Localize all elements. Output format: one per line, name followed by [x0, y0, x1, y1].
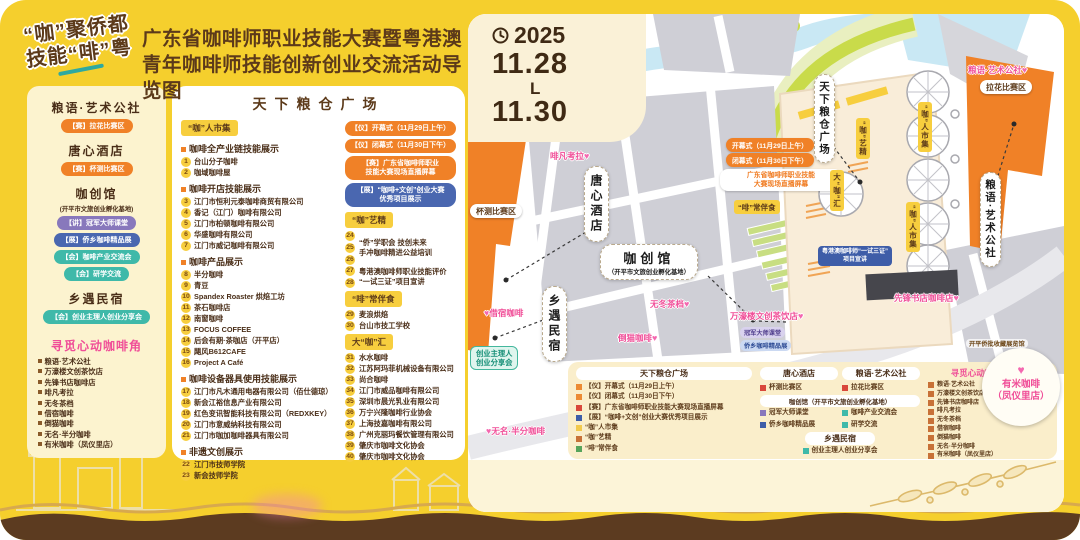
legend-color-square — [760, 422, 766, 428]
ceremony-pill: 【仪】闭幕式（11月30日下午） — [345, 139, 456, 154]
coffee-shop-item: 先锋书店咖啡店 — [38, 378, 156, 388]
item-number: 36 — [345, 408, 355, 418]
program-entry: 242526 “侨”学职会 技创未来手冲咖啡精进公益培训 — [345, 231, 456, 265]
program-entry: 33 尚合咖啡 — [345, 375, 456, 385]
item-text: 江门市意威纳科技有限公司 — [194, 420, 339, 430]
legend-coffee-shop: 无名·半分咖啡 — [928, 443, 1033, 452]
zone-tag: “咖”艺精 — [345, 212, 393, 228]
program-entry: 30 台山市技工学校 — [345, 321, 456, 331]
program-section: 咖啡设备器具使用技能展示 17 江门市凡木通用电器有限公司（佰仕德琼） — [181, 372, 339, 441]
item-number: 34 — [345, 386, 355, 396]
item-number: 30 — [345, 321, 355, 331]
market-zone-tag-1: “咖”人市集 — [918, 102, 932, 152]
exhibitor-item: 8 半分咖啡 — [181, 270, 339, 280]
item-text: 台山分子咖啡 — [194, 157, 339, 167]
item-text: 茶石咖啡店 — [194, 303, 339, 313]
venue-subtitle: (开平市文旅创业孵化基地) — [33, 204, 160, 213]
item-number: 7 — [181, 241, 191, 251]
legend-color-square — [928, 426, 934, 432]
coffee-shop-item: 倒猫咖啡 — [38, 419, 156, 429]
legend-row-text: 【仪】闭幕式（11月30日下午） — [585, 392, 678, 402]
exhibitor-item: 12 南窗咖啡 — [181, 314, 339, 324]
exhibitor-item: 1 台山分子咖啡 — [181, 157, 339, 167]
program-entry: 40 肇庆市咖啡文化协会 — [345, 452, 456, 462]
sharing-note-line1: 创业主理人 — [476, 349, 512, 358]
pill-line: 技能大赛现场直播屏幕 — [350, 168, 451, 178]
legend-plaza-header: 天下粮仓广场 — [576, 367, 752, 380]
item-text: 江门市技师学院 — [194, 460, 339, 470]
opening-ceremony-pill: 开幕式（11月29日上午） — [726, 138, 814, 152]
ceremony-pill: 【展】“咖啡+文创”创业大赛优秀项目展示 — [345, 183, 456, 207]
market-tag: “咖”人市集 — [181, 120, 238, 136]
legend-color-square — [928, 444, 934, 450]
item-number: 37 — [345, 419, 355, 429]
venue-section: 咖创馆 (开平市文旅创业孵化基地) 【讲】冠军大师课堂 【展】侨乡咖啡精品展 【… — [33, 185, 160, 281]
champion-class-badge: 冠军大师课堂 — [740, 327, 785, 338]
entry-line: 上海技嘉咖啡有限公司 — [359, 419, 432, 429]
item-number: 1 — [181, 157, 191, 167]
item-text: Project A Café — [194, 358, 339, 368]
item-number: 6 — [181, 230, 191, 240]
program-section-heading: 咖啡全产业链技能展示 — [181, 142, 339, 155]
item-text: 香记（江门）咖啡有限公司 — [194, 208, 339, 218]
certification-line1: 粤港澳咖啡师“一试三证” — [822, 248, 888, 256]
legend-plaza-column: 天下粮仓广场 【仪】开幕式（11月29日上午） 【仪】闭幕式（11月30日下午） — [576, 367, 752, 454]
date-separator: L — [530, 80, 646, 97]
exhibitor-item: 19 红色变讯智能科技有限公司（REDXKEY） — [181, 409, 339, 419]
zone-tag: 大“咖”汇 — [345, 334, 393, 350]
legend-row: 【展】“咖啡+文创”创业大赛优秀项目展示 — [576, 413, 752, 423]
title-line1: 广东省咖啡师职业技能大赛暨粤港澳 — [142, 26, 472, 52]
shop-label-wanhao: 万濠楼文创茶饮店♥ — [730, 310, 803, 322]
program-section: 咖啡产品展示 8 半分咖啡 9 — [181, 255, 339, 368]
venue-section: 粮语·艺术公社 【赛】拉花比赛区 — [33, 99, 160, 133]
shop-label-feifan: 啡凡考拉♥ — [550, 150, 589, 162]
exhibitor-item: 15 飓风B612CAFE — [181, 347, 339, 357]
pill-line: 【展】“咖啡+文创”创业大赛 — [350, 186, 451, 196]
legend-color-square — [576, 384, 582, 390]
activity-badge: 【会】研学交流 — [64, 267, 129, 281]
kachuangguan-subtitle: （开平市文旅创业孵化基地） — [608, 267, 690, 276]
item-text: 飓风B612CAFE — [194, 347, 339, 357]
legend-row-text: 【赛】广东省咖啡师职业技能大赛现场直播屏幕 — [585, 403, 723, 413]
legend-row: 【仪】闭幕式（11月30日下午） — [576, 392, 752, 402]
venue-section: 唐心酒店 【赛】杯测比赛区 — [33, 142, 160, 176]
entry-line: 江苏阿玛菲机械设备有限公司 — [359, 364, 454, 374]
program-group: “啡”常伴食 29 — [345, 289, 456, 331]
legend-coffee-shop: 倒猫咖啡 — [928, 434, 1033, 443]
item-text: 江门市恒利元泰咖啡商贸有限公司 — [194, 197, 339, 207]
item-text: 后会有期·茶咖店（开平店） — [194, 336, 339, 346]
item-number: 33 — [345, 375, 355, 385]
ceremony-pill: 【仪】开幕式（11月29日上午） — [345, 121, 456, 136]
legend-row: 【赛】广东省咖啡师职业技能大赛现场直播屏幕 — [576, 403, 752, 413]
item-number: 20 — [181, 420, 191, 430]
entry-line: 广州克丽玛餐饮管理有限公司 — [359, 430, 454, 440]
exhibitor-item: 20 江门市意威纳科技有限公司 — [181, 420, 339, 430]
item-number: 3 — [181, 197, 191, 207]
item-number: 24 — [345, 231, 355, 241]
legend-color-square — [576, 425, 582, 431]
program-entry: 34 江门市威品咖啡有限公司 — [345, 386, 456, 396]
legend-xiangyu-header: 乡遇民宿 — [805, 432, 875, 445]
item-number: 35 — [345, 397, 355, 407]
legend-color-square — [576, 415, 582, 421]
qiaoxiang-expo-badge: 侨乡咖啡精品展 — [740, 340, 791, 351]
certification-line2: 项目宣讲 — [822, 256, 888, 264]
exhibitor-item: 23 新会技师学院 — [181, 471, 339, 481]
item-number: 16 — [181, 358, 191, 368]
map-label-kachuangguan: 咖创馆 （开平市文旅创业孵化基地） — [600, 244, 698, 280]
item-number: 28 — [345, 278, 355, 288]
live-note-line2: 大赛现场直播屏幕 — [725, 180, 837, 189]
activity-badge: 【讲】冠军大师课堂 — [57, 216, 136, 230]
exhibitor-item: 9 青豆 — [181, 281, 339, 291]
youmi-coffee-callout: ♥ 有米咖啡 （凤仪里店） — [982, 348, 1060, 426]
item-text: 青豆 — [194, 281, 339, 291]
item-number: 4 — [181, 208, 191, 218]
program-entry: 31 水水咖啡 — [345, 353, 456, 363]
shop-label-wuming: ♥无名·半分咖啡 — [486, 425, 545, 437]
legend-row-text: “咖”艺精 — [585, 433, 611, 443]
item-number: 12 — [181, 314, 191, 324]
item-text: 华盛咖啡有限公司 — [194, 230, 339, 240]
exhibitor-item: 2 咖域咖啡屋 — [181, 168, 339, 178]
legend-color-square — [576, 405, 582, 411]
heart-icon: ♥ — [798, 311, 803, 321]
item-number: 5 — [181, 219, 191, 229]
program-entry: 39 肇庆市咖啡文化协会 — [345, 441, 456, 451]
live-note-line1: 广东省咖啡师职业技能 — [725, 171, 837, 180]
event-dates: 2025 11.28 L 11.30 — [468, 14, 646, 142]
market-zone-tag-2: “咖”人市集 — [906, 202, 920, 252]
cupping-zone-pill: 杯测比赛区 — [470, 204, 522, 218]
pill-line: 【仪】闭幕式（11月30日下午） — [350, 141, 451, 151]
item-number: 40 — [345, 452, 355, 462]
item-text: 南窗咖啡 — [194, 314, 339, 324]
exhibitor-item: 17 江门市凡木通用电器有限公司（佰仕德琼） — [181, 387, 339, 397]
program-right-column: 【仪】开幕式（11月29日上午） 【仪】闭幕式（11月30日下午） 【赛】广东省… — [345, 118, 456, 482]
item-number: 22 — [181, 460, 191, 470]
poster-canvas: “咖”聚侨都 技能“啡”粤 广东省咖啡师职业技能大赛暨粤港澳 青年咖啡师技能创新… — [0, 0, 1080, 540]
venue-title: 粮语·艺术公社 — [33, 99, 160, 116]
program-section-heading: 咖啡产品展示 — [181, 255, 339, 268]
coffee-branch-art — [860, 452, 1060, 512]
dakahui-zone-tag: 大“咖”汇 — [830, 170, 844, 211]
coffee-shop-item: 借宿咖啡 — [38, 409, 156, 419]
map-panel: 2025 11.28 L 11.30 唐心酒店 乡遇民宿 天下粮仓广场 粮语·艺… — [468, 14, 1064, 512]
legend-color-square — [842, 410, 848, 416]
entry-line: 肇庆市咖啡文化协会 — [359, 452, 425, 462]
venue-title: 咖创馆 — [33, 185, 160, 202]
legend-color-square — [928, 435, 934, 441]
clock-icon — [492, 27, 509, 44]
callout-caption: 开平侨批收藏展览馆 — [966, 339, 1028, 348]
exhibitor-item: 22 江门市技师学院 — [181, 460, 339, 470]
entry-line: 麦浪烘焙 — [359, 310, 388, 320]
heart-icon: ♥ — [684, 299, 689, 309]
item-number: 19 — [181, 409, 191, 419]
item-number: 39 — [345, 441, 355, 451]
legend-row: “啡”常伴食 — [576, 444, 752, 454]
item-text: 江门市威记咖啡有限公司 — [194, 241, 339, 251]
legend-color-square — [576, 436, 582, 442]
program-group: 大“咖”汇 31 — [345, 332, 456, 462]
entry-line: “一试三证”项目宣讲 — [359, 277, 447, 287]
program-entry: 37 上海技嘉咖啡有限公司 — [345, 419, 456, 429]
date-from: 11.28 — [492, 49, 646, 80]
venue-sidebar: 粮语·艺术公社 【赛】拉花比赛区 唐心酒店 【赛】杯测比赛区 — [27, 86, 166, 458]
coffee-shop-item: 啡凡考拉 — [38, 388, 156, 398]
panel-bottom-strip — [468, 460, 1064, 512]
activity-badge: 【赛】拉花比赛区 — [61, 119, 133, 133]
exhibitor-item: 14 后会有期·茶咖店（开平店） — [181, 336, 339, 346]
activity-badge: 【会】咖啡产业交流会 — [54, 250, 140, 264]
map-label-xiangyu-homestay: 乡遇民宿 — [542, 286, 567, 362]
exhibitor-item: 18 新会江裕信息产业有限公司 — [181, 398, 339, 408]
coffee-shop-item: 粮语·艺术公社 — [38, 357, 156, 367]
legend-color-square — [928, 382, 934, 388]
legend-color-square — [803, 448, 809, 454]
shop-label-daomao: 倒猫咖啡♥ — [618, 332, 657, 344]
entry-line: 江门市威品咖啡有限公司 — [359, 386, 439, 396]
exhibitor-item: 13 FOCUS COFFEE — [181, 325, 339, 335]
entry-line: 尚合咖啡 — [359, 375, 388, 385]
program-left-column: “咖”人市集 咖啡全产业链技能展示 1 台山分子咖啡 — [181, 118, 339, 482]
legend-venues-column: 唐心酒店 粮语·艺术公社 杯测比赛区 拉花比赛区 咖创馆（开平市文旅创业孵化基地… — [760, 367, 920, 454]
program-section: 咖啡全产业链技能展示 1 台山分子咖啡 — [181, 142, 339, 178]
entry-line: “侨”学职会 技创未来 — [359, 238, 432, 248]
legend-coffee-shop: 有米咖啡（凤仪里店） — [928, 451, 1033, 460]
legend-row: “咖”人市集 — [576, 423, 752, 433]
pill-line: 【赛】广东省咖啡师职业 — [350, 159, 451, 169]
exhibitor-item: 21 江门市咖加咖啡器具有限公司 — [181, 431, 339, 441]
item-number: 2 — [181, 168, 191, 178]
entry-line: 手冲咖啡精进公益培训 — [359, 248, 432, 258]
callout-branch-name: （凤仪里店） — [982, 391, 1060, 403]
closing-ceremony-pill: 闭幕式（11月30日下午） — [726, 153, 814, 167]
item-number: 32 — [345, 364, 355, 374]
kachuangguan-name: 咖创馆 — [608, 248, 690, 267]
certification-note: 粤港澳咖啡师“一试三证” 项目宣讲 — [818, 246, 892, 266]
item-number: 38 — [345, 430, 355, 440]
item-text: 新会技师学院 — [194, 471, 339, 481]
entry-line: 肇庆市咖啡文化协会 — [359, 441, 425, 451]
entry-line: 万宁兴隆咖啡行业协会 — [359, 408, 432, 418]
legend-color-square — [928, 391, 934, 397]
legend-color-square — [842, 385, 848, 391]
map-label-liangyu-commune: 粮语·艺术公社 — [980, 172, 1001, 267]
exhibitor-item: 11 茶石咖啡店 — [181, 303, 339, 313]
ceremony-pill: 【赛】广东省咖啡师职业技能大赛现场直播屏幕 — [345, 156, 456, 180]
program-group: “咖”艺精 242526 — [345, 210, 456, 288]
coffee-shop-item: 无冬茶档 — [38, 399, 156, 409]
coffee-shop-item: 有米咖啡（凤仪里店） — [38, 440, 156, 450]
pink-stamp-blur — [252, 494, 322, 518]
title-line2: 青年咖啡师技能创新创业交流活动导览图 — [142, 52, 472, 104]
program-entry: 2728 粤港澳咖啡师职业技能评价“一试三证”项目宣讲 — [345, 266, 456, 288]
entry-line: 深圳市晨光乳业有限公司 — [359, 397, 439, 407]
venue-title: 唐心酒店 — [33, 142, 160, 159]
legend-color-square — [842, 422, 848, 428]
live-broadcast-note: 广东省咖啡师职业技能 大赛现场直播屏幕 — [720, 169, 842, 191]
sharing-session-note: 创业主理人 创业分享会 — [470, 346, 518, 370]
entry-line: 台山市技工学校 — [359, 321, 410, 331]
page-title: 广东省咖啡师职业技能大赛暨粤港澳 青年咖啡师技能创新创业交流活动导览图 — [142, 26, 472, 104]
heart-icon: ♥ — [954, 293, 959, 303]
legend-color-square — [760, 385, 766, 391]
legend-row-text: “啡”常伴食 — [585, 444, 618, 454]
legend-coffee-shop: 借宿咖啡 — [928, 425, 1033, 434]
event-logo: “咖”聚侨都 技能“啡”粤 — [11, 10, 145, 79]
exhibitor-item: 6 华盛咖啡有限公司 — [181, 230, 339, 240]
kayijing-zone-tag: “咖”艺精 — [856, 118, 870, 159]
date-year: 2025 — [514, 22, 565, 49]
legend-color-square — [928, 453, 934, 459]
latte-art-zone-pill: 拉花比赛区 — [980, 80, 1032, 94]
legend-color-square — [576, 394, 582, 400]
item-number: 23 — [181, 471, 191, 481]
program-entry: 35 深圳市晨光乳业有限公司 — [345, 397, 456, 407]
item-number: 13 — [181, 325, 191, 335]
legend-row-text: 【仪】开幕式（11月29日上午） — [585, 382, 678, 392]
sharing-note-line2: 创业分享会 — [476, 358, 512, 367]
legend-color-square — [760, 410, 766, 416]
item-number: 15 — [181, 347, 191, 357]
legend-kachuangguan-header: 咖创馆（开平市文旅创业孵化基地） — [760, 395, 920, 407]
exhibitor-item: 4 香记（江门）咖啡有限公司 — [181, 208, 339, 218]
activity-badge: 【赛】杯测比赛区 — [61, 162, 133, 176]
coffee-shop-item: 无名·半分咖啡 — [38, 430, 156, 440]
item-number: 11 — [181, 303, 191, 313]
heart-icon: ♥ — [652, 333, 657, 343]
heart-icon: ♥ — [584, 151, 589, 161]
item-text: 新会江裕信息产业有限公司 — [194, 398, 339, 408]
coffee-shop-item: 万濠楼文创茶饮店 — [38, 367, 156, 377]
map-label-tangxin-hotel: 唐心酒店 — [584, 166, 609, 242]
item-text: 江门市凡木通用电器有限公司（佰仕德琼） — [194, 387, 339, 397]
item-number: 8 — [181, 270, 191, 280]
item-number: 26 — [345, 255, 355, 265]
legend-row-text: “咖”人市集 — [585, 423, 618, 433]
item-number: 10 — [181, 292, 191, 302]
callout-shop-name: 有米咖啡 — [982, 379, 1060, 391]
shop-label-liangyu: 粮语·艺术公社♥ — [968, 64, 1027, 76]
legend-color-square — [928, 400, 934, 406]
activity-badge: 【展】侨乡咖啡精品展 — [54, 233, 140, 247]
legend-color-square — [928, 418, 934, 424]
shop-label-wudong: 无冬茶档♥ — [650, 298, 689, 310]
item-text: 半分咖啡 — [194, 270, 339, 280]
program-entry: 36 万宁兴隆咖啡行业协会 — [345, 408, 456, 418]
legend-row-text: 【展】“咖啡+文创”创业大赛优秀项目展示 — [585, 413, 708, 423]
item-number: 14 — [181, 336, 191, 346]
program-entry: 32 江苏阿玛菲机械设备有限公司 — [345, 364, 456, 374]
program-section-heading: 咖啡设备器具使用技能展示 — [181, 372, 339, 385]
item-number: 9 — [181, 281, 191, 291]
legend-color-square — [576, 446, 582, 452]
program-panel: 天下粮仓广场 “咖”人市集 咖啡全产业链技能展示 1 — [172, 86, 465, 460]
zone-tag: “啡”常伴食 — [345, 291, 402, 307]
shop-label-jiesu: ♥借宿咖啡 — [484, 307, 523, 319]
item-number: 18 — [181, 398, 191, 408]
item-number: 27 — [345, 266, 355, 276]
program-section-heading: 非遗文创展示 — [181, 445, 339, 458]
entry-line: 水水咖啡 — [359, 353, 388, 363]
exhibitor-item: 3 江门市恒利元泰咖啡商贸有限公司 — [181, 197, 339, 207]
program-entry: 38 广州克丽玛餐饮管理有限公司 — [345, 430, 456, 440]
item-number: 17 — [181, 387, 191, 397]
coffee-corner-title: 寻觅心动咖啡角 — [33, 337, 160, 354]
exhibitor-item: 7 江门市威记咖啡有限公司 — [181, 241, 339, 251]
venue-title: 乡遇民宿 — [33, 290, 160, 307]
item-number: 31 — [345, 353, 355, 363]
heart-icon: ♥ — [1022, 65, 1027, 75]
venue-section: 乡遇民宿 【会】创业主理人创业分享会 — [33, 290, 160, 324]
exhibitor-item: 10 Spandex Roaster 烘焙工坊 — [181, 292, 339, 302]
shop-label-xianfeng: 先锋书店咖啡店♥ — [894, 292, 959, 304]
program-section: 咖啡开店技能展示 3 江门市恒利元泰咖啡商贸有限公司 — [181, 182, 339, 251]
map-label-granary-plaza: 天下粮仓广场 — [814, 74, 835, 163]
activity-badge: 【会】创业主理人创业分享会 — [43, 310, 150, 324]
legend-tangxin-header: 唐心酒店 — [760, 367, 838, 380]
pill-line: 优秀项目展示 — [350, 195, 451, 205]
program-section-heading: 咖啡开店技能展示 — [181, 182, 339, 195]
item-number: 25 — [345, 243, 355, 253]
item-text: 江门市柏顿咖啡有限公司 — [194, 219, 339, 229]
item-number: 21 — [181, 431, 191, 441]
legend-liangyu-header: 粮语·艺术公社 — [842, 367, 920, 380]
item-number: 29 — [345, 310, 355, 320]
program-entry: 29 麦浪烘焙 — [345, 310, 456, 320]
legend-row: “咖”艺精 — [576, 433, 752, 443]
feichang-zone-tag: “啡”常伴食 — [734, 200, 780, 214]
item-text: FOCUS COFFEE — [194, 325, 339, 335]
item-text: Spandex Roaster 烘焙工坊 — [194, 292, 339, 302]
item-text: 红色变讯智能科技有限公司（REDXKEY） — [194, 409, 339, 419]
item-text: 江门市咖加咖啡器具有限公司 — [194, 431, 339, 441]
exhibitor-item: 16 Project A Café — [181, 358, 339, 368]
exhibitor-item: 5 江门市柏顿咖啡有限公司 — [181, 219, 339, 229]
legend-row: 【仪】开幕式（11月29日上午） — [576, 382, 752, 392]
heart-icon: ♥ — [1017, 363, 1024, 377]
date-to: 11.30 — [492, 97, 646, 128]
item-text: 咖域咖啡屋 — [194, 168, 339, 178]
pill-line: 【仪】开幕式（11月29日上午） — [350, 124, 451, 134]
legend-color-square — [928, 409, 934, 415]
entry-line: 粤港澳咖啡师职业技能评价 — [359, 267, 447, 277]
program-section: 非遗文创展示 22 江门市技师学院 2 — [181, 445, 339, 481]
